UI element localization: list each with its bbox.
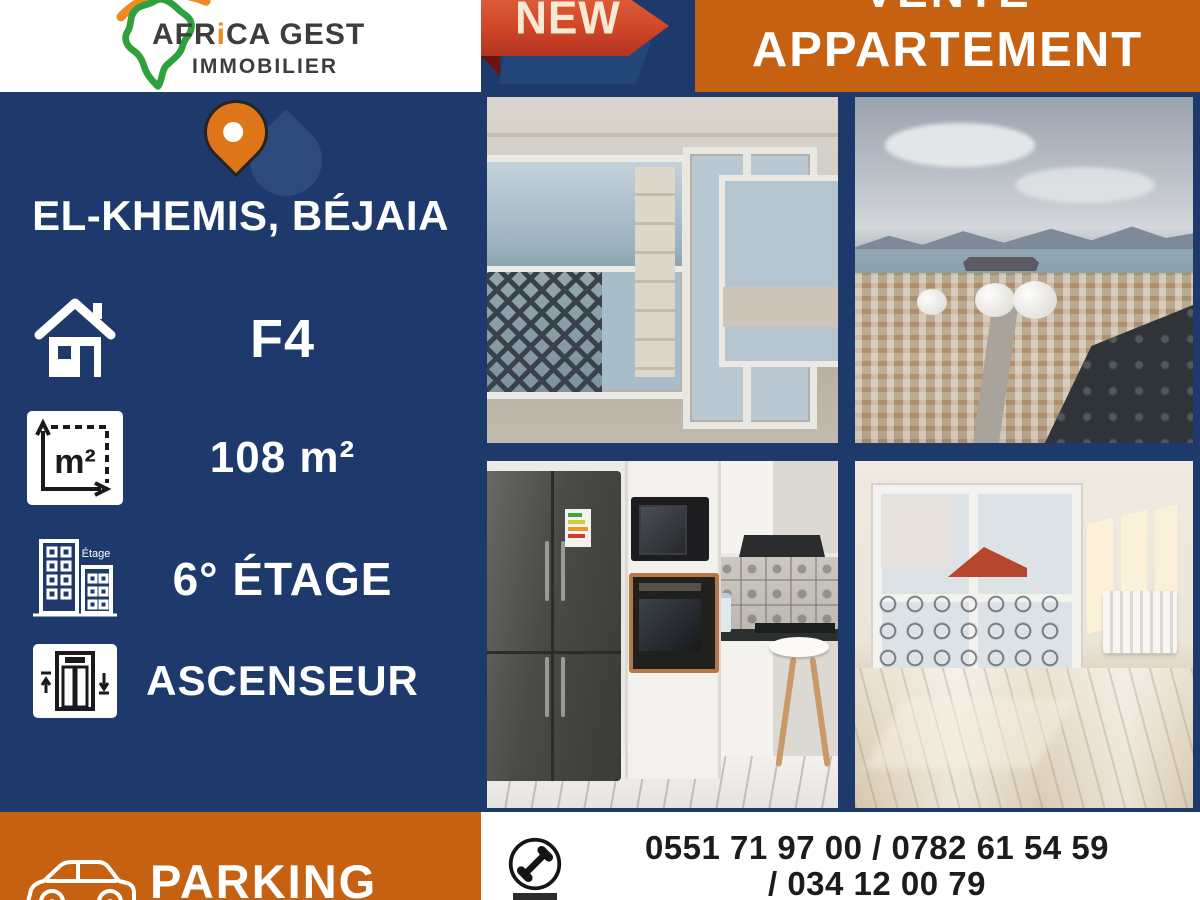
kitchen-photo bbox=[487, 461, 838, 808]
new-badge-label: NEW bbox=[507, 0, 629, 45]
parking-section: PARKING bbox=[0, 812, 481, 900]
new-badge-cell: NEW bbox=[481, 0, 695, 92]
feature-elevator: ASCENSEUR bbox=[0, 643, 481, 719]
logo-name: AFRiCA GEST bbox=[152, 20, 365, 50]
phone-line-1: 0551 71 97 00 / 0782 61 54 59 bbox=[577, 830, 1177, 866]
logo-header: AFRiCA GEST IMMOBILIER bbox=[0, 0, 481, 92]
city-view-photo bbox=[855, 97, 1193, 443]
parking-label: PARKING bbox=[150, 854, 377, 900]
building-icon-text: Étage bbox=[82, 547, 111, 560]
living-room-photo bbox=[487, 97, 838, 443]
banner-line-appartement: APPARTEMENT bbox=[695, 22, 1200, 78]
area-icon-glyph: m² bbox=[54, 443, 96, 481]
title-banner: VENTE APPARTEMENT bbox=[695, 0, 1200, 92]
real-estate-flyer: AFRiCA GEST IMMOBILIER NEW VENTE APPARTE… bbox=[0, 0, 1200, 900]
feature-rooms: F4 bbox=[0, 288, 481, 390]
car-icon bbox=[22, 850, 140, 900]
features-sidebar: EL-KHEMIS, BÉJAIA F4 bbox=[0, 92, 481, 812]
phone-numbers: 0551 71 97 00 / 0782 61 54 59 / 034 12 0… bbox=[577, 830, 1177, 900]
phone-icon bbox=[507, 836, 563, 892]
contact-footer: 0551 71 97 00 / 0782 61 54 59 / 034 12 0… bbox=[481, 812, 1200, 900]
partial-next-icon bbox=[513, 893, 557, 900]
location-title: EL-KHEMIS, BÉJAIA bbox=[0, 192, 481, 240]
empty-room-photo bbox=[855, 461, 1193, 808]
logo-accent-letter: i bbox=[217, 18, 226, 51]
feature-floor-label: 6° ÉTAGE bbox=[110, 552, 455, 606]
feature-rooms-label: F4 bbox=[110, 308, 455, 370]
logo-text: AFRiCA GEST IMMOBILIER bbox=[152, 20, 365, 77]
feature-floor: Étage 6° ÉTAGE bbox=[0, 533, 481, 625]
logo-subtitle: IMMOBILIER bbox=[192, 56, 365, 77]
feature-area: m² 108 m² bbox=[0, 410, 481, 506]
phone-line-2: / 034 12 00 79 bbox=[577, 866, 1177, 900]
photo-grid bbox=[481, 92, 1200, 812]
banner-line-vente: VENTE bbox=[695, 0, 1200, 18]
feature-area-label: 108 m² bbox=[110, 433, 455, 483]
feature-elevator-label: ASCENSEUR bbox=[110, 657, 455, 705]
